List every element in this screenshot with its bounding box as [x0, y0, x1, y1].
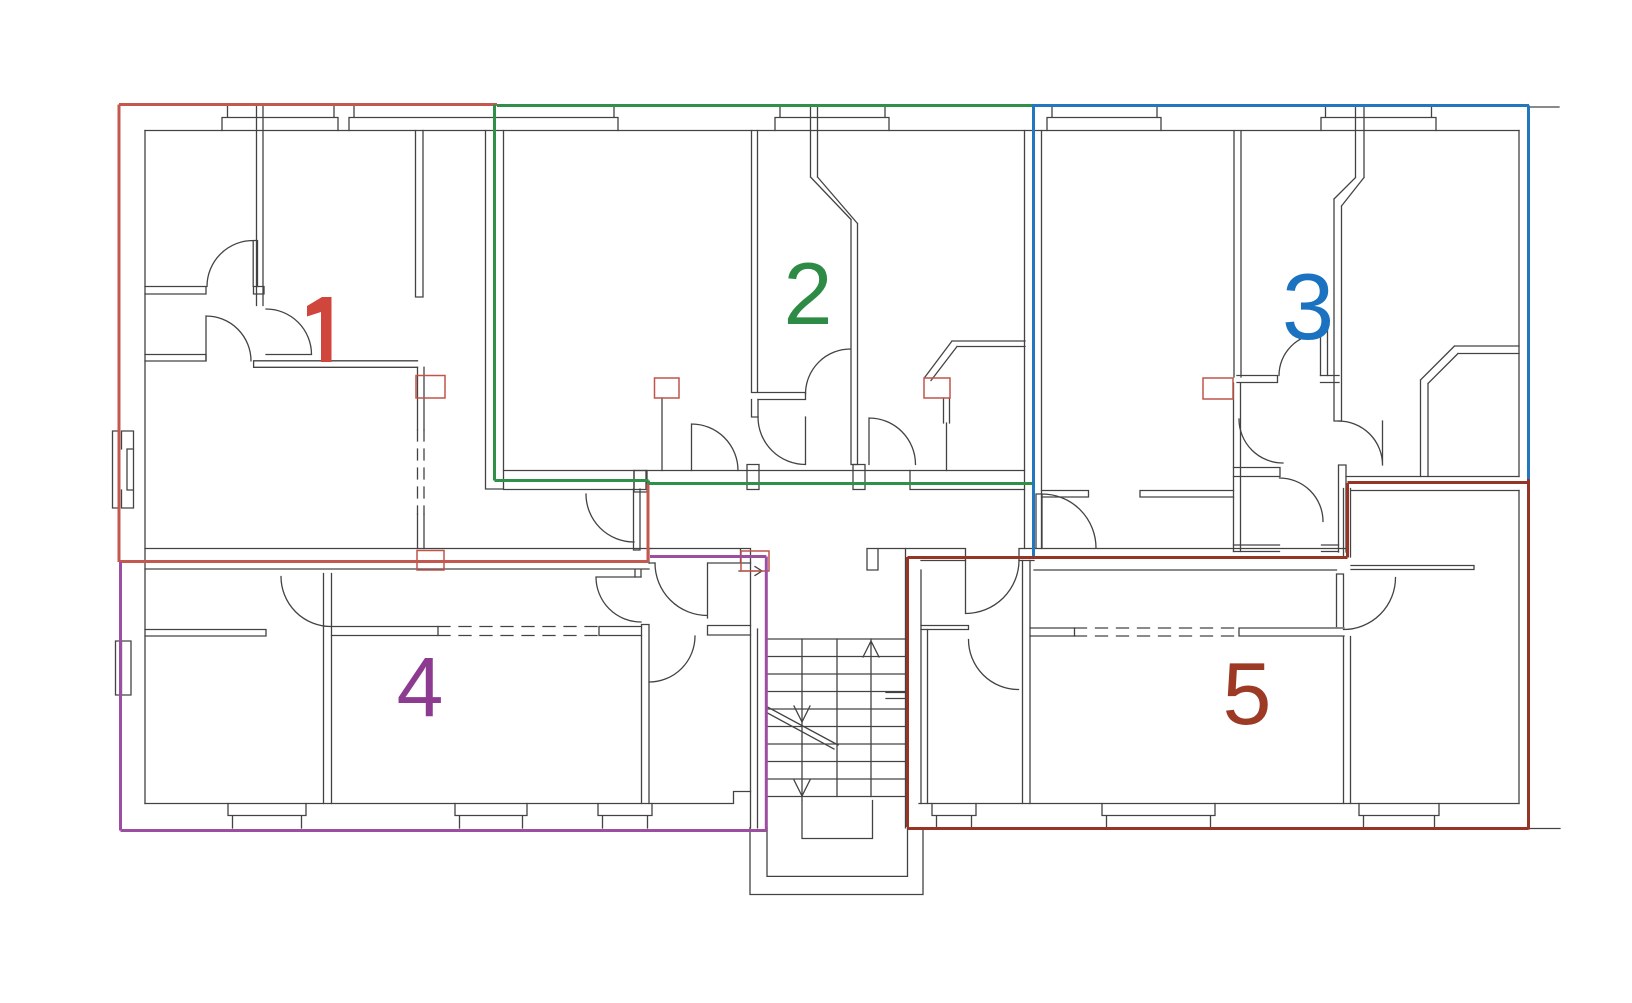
svg-text:4: 4 — [397, 640, 444, 734]
svg-text:5: 5 — [1223, 644, 1272, 743]
svg-text:3: 3 — [1282, 254, 1334, 359]
svg-text:2: 2 — [784, 244, 833, 343]
